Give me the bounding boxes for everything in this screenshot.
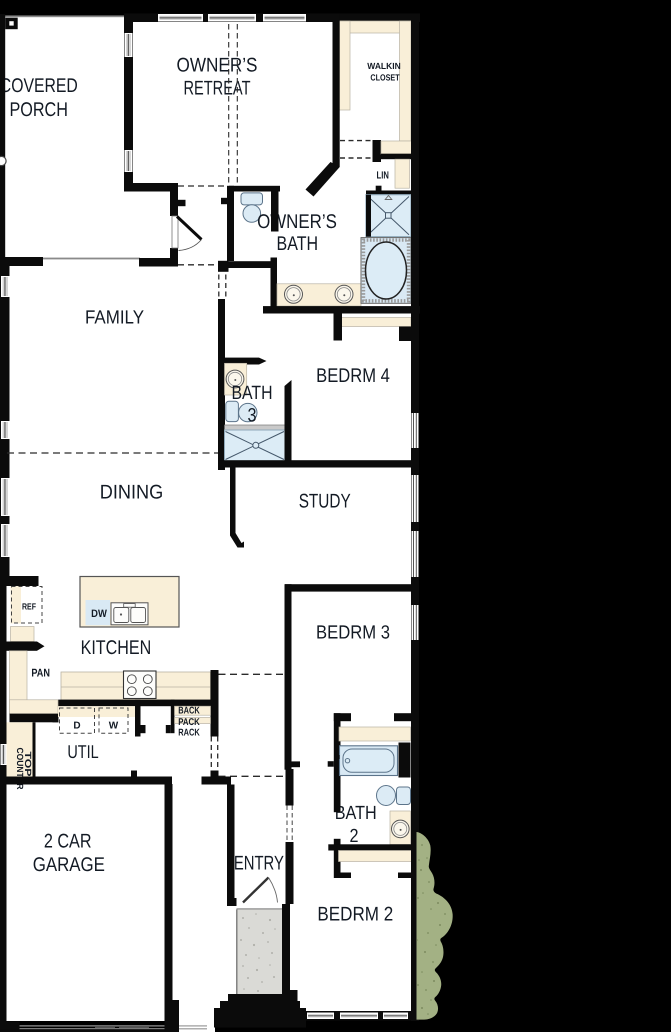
svg-text:LIN: LIN <box>377 170 389 181</box>
svg-text:DINING: DINING <box>100 482 164 504</box>
svg-text:RETREAT: RETREAT <box>184 77 251 99</box>
svg-text:REF: REF <box>22 602 36 612</box>
svg-text:BEDRM 3: BEDRM 3 <box>316 623 390 644</box>
svg-text:OWNER’S: OWNER’S <box>257 211 337 233</box>
svg-text:BATH: BATH <box>232 383 273 404</box>
svg-text:TOP: TOP <box>23 752 33 777</box>
svg-text:PORCH: PORCH <box>9 99 68 121</box>
svg-text:D: D <box>73 721 80 732</box>
svg-text:STUDY: STUDY <box>299 491 351 513</box>
svg-text:2 CAR: 2 CAR <box>44 831 92 853</box>
svg-text:2: 2 <box>350 826 359 847</box>
svg-text:OWNER’S: OWNER’S <box>177 55 258 77</box>
svg-text:PACK: PACK <box>178 717 200 728</box>
svg-text:RACK: RACK <box>178 728 200 739</box>
svg-text:KITCHEN: KITCHEN <box>81 637 152 659</box>
svg-text:BATH: BATH <box>335 803 377 824</box>
svg-text:BEDRM 4: BEDRM 4 <box>316 365 390 387</box>
svg-text:BACK: BACK <box>178 705 200 716</box>
svg-text:WALKIN: WALKIN <box>367 61 400 71</box>
svg-text:W: W <box>109 721 119 732</box>
svg-text:UTIL: UTIL <box>67 741 98 762</box>
svg-text:DW: DW <box>91 608 107 620</box>
svg-text:FAMILY: FAMILY <box>85 308 144 329</box>
svg-text:CLOSET: CLOSET <box>370 72 400 82</box>
svg-text:BEDRM 2: BEDRM 2 <box>317 904 393 926</box>
svg-text:BATH: BATH <box>277 233 319 255</box>
svg-text:GARAGE: GARAGE <box>33 854 105 876</box>
svg-text:3: 3 <box>248 406 257 427</box>
svg-text:COVERED: COVERED <box>0 75 78 97</box>
svg-text:PAN: PAN <box>31 667 50 679</box>
svg-text:ENTRY: ENTRY <box>234 853 284 875</box>
